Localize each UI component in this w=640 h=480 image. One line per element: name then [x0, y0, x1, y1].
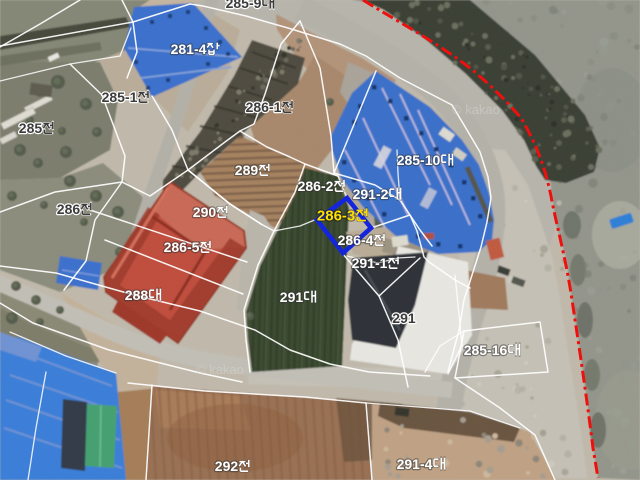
svg-text:291-2: 291-2	[353, 186, 389, 202]
svg-text:286: 286	[57, 201, 81, 217]
svg-text:286-3: 286-3	[317, 207, 355, 224]
svg-text:285-10: 285-10	[397, 152, 441, 168]
svg-text:292: 292	[215, 458, 239, 474]
svg-text:285-9: 285-9	[226, 0, 262, 11]
svg-text:© kakao: © kakao	[452, 102, 500, 117]
svg-text:291: 291	[392, 310, 416, 326]
svg-text:285-16: 285-16	[464, 342, 508, 358]
svg-text:291-4: 291-4	[397, 456, 433, 472]
svg-text:286-1: 286-1	[246, 99, 282, 115]
svg-text:289: 289	[235, 162, 259, 178]
svg-text:291: 291	[280, 289, 304, 305]
svg-text:286-4: 286-4	[338, 232, 374, 248]
svg-text:286-5: 286-5	[164, 239, 200, 255]
svg-text:291-1: 291-1	[352, 255, 388, 271]
svg-text:© kakao: © kakao	[196, 362, 244, 377]
svg-text:281-4: 281-4	[171, 41, 207, 57]
svg-text:286-2: 286-2	[298, 178, 334, 194]
svg-text:285-1: 285-1	[102, 89, 138, 105]
svg-text:288: 288	[125, 287, 149, 303]
svg-text:285: 285	[19, 120, 43, 136]
svg-text:290: 290	[193, 204, 217, 220]
